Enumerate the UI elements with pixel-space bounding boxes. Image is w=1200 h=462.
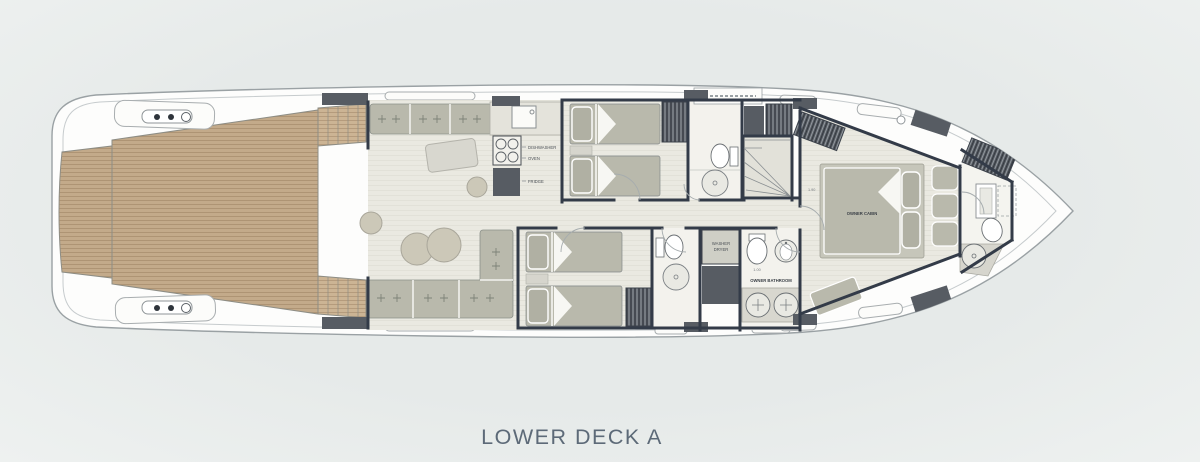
- bulkhead-block-washer: [702, 266, 740, 304]
- cleat-port: [142, 110, 192, 123]
- shower-guest-port: [702, 170, 728, 196]
- wardrobe-guest-port: [662, 102, 688, 142]
- bow-cabinet-inner: [980, 188, 992, 214]
- salon-stool-2: [360, 212, 382, 234]
- central-staircase: [744, 104, 792, 198]
- owner-vanity: [742, 288, 800, 322]
- deck-hatch-mid-port: [385, 92, 475, 100]
- wardrobe-stairs: [766, 104, 792, 136]
- guest-cabin-starboard: [518, 228, 652, 328]
- swim-platform: [59, 146, 112, 278]
- guest-bath-starboard: [652, 228, 700, 328]
- toilet-guest-starboard: [656, 235, 683, 259]
- nightstand-port: [570, 146, 592, 155]
- guest-cabin-port: [564, 100, 688, 200]
- guest-bed-3: [526, 232, 622, 272]
- bow-fitting: [897, 116, 905, 124]
- owner-bathroom-label: OWNER BATHROOM: [750, 278, 792, 283]
- deck-plan-page: DISHWASHER OVEN FRIDGE: [0, 0, 1200, 462]
- guest-bed-1: [570, 104, 660, 144]
- salon-stool-1: [467, 177, 487, 197]
- owner-bath-dim: 1.00: [753, 268, 760, 272]
- aft-stairs-port: [318, 104, 366, 146]
- oven-label: OVEN: [528, 156, 540, 161]
- toilet-guest-port: [711, 144, 738, 168]
- aft-deck-floor: [112, 110, 318, 314]
- galley-stove: [493, 136, 521, 165]
- bulkhead-block-galley-top: [492, 96, 520, 106]
- owner-settee: [932, 166, 958, 246]
- nightstand-starboard: [526, 274, 548, 284]
- shower-guest-starboard: [663, 264, 689, 290]
- toilet-owner: [747, 234, 767, 264]
- dryer-label: DRYER: [714, 247, 729, 252]
- bulkhead-block-galley: [493, 168, 520, 196]
- fridge-label: FRIDGE: [528, 179, 544, 184]
- owner-cabin-dim: 1.90: [808, 188, 815, 192]
- guest-bed-2: [570, 156, 660, 196]
- dishwasher-label: DISHWASHER: [528, 145, 556, 150]
- washer-dryer-closet: WASHER DRYER: [702, 230, 740, 304]
- salon-table-2: [427, 228, 461, 262]
- yacht-lower-deck-plan: DISHWASHER OVEN FRIDGE: [0, 0, 1200, 462]
- bulkhead-block-stairs: [744, 106, 764, 136]
- page-title: LOWER DECK A: [481, 425, 663, 449]
- guest-bed-4: [526, 286, 622, 326]
- washer-label: WASHER: [712, 241, 730, 246]
- owner-bathroom: 1.00 OWNER BATHROOM: [742, 228, 800, 330]
- owner-cabin-label: OWNER CABIN: [847, 211, 877, 216]
- wardrobe-guest-starboard: [626, 288, 652, 326]
- salon-sofa-port: [370, 104, 492, 134]
- aft-stairs-starboard: [318, 276, 366, 318]
- cleat-starboard: [142, 301, 192, 314]
- corridor-floor: [513, 200, 803, 228]
- galley-sink: [512, 106, 536, 128]
